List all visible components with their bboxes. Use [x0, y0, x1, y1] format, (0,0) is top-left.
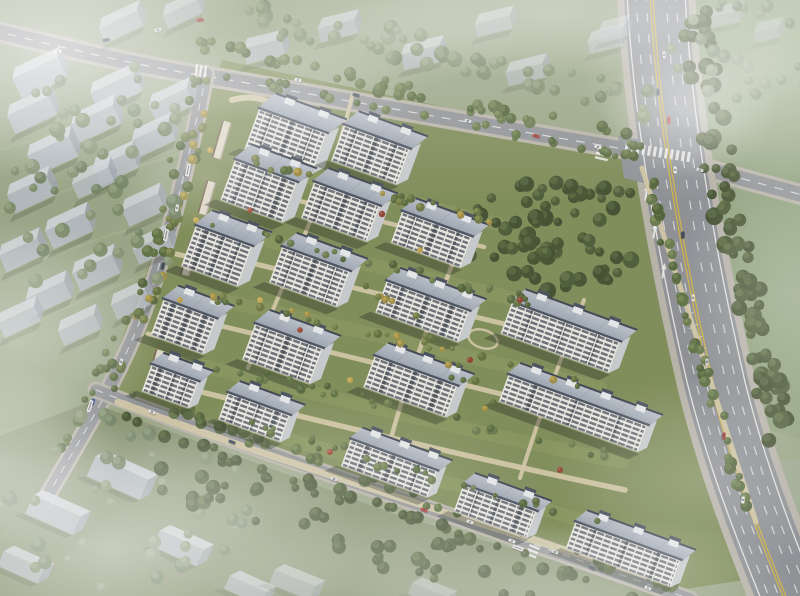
scene-svg	[0, 0, 800, 596]
fog-layer	[0, 0, 800, 596]
aerial-rendering	[0, 0, 800, 596]
